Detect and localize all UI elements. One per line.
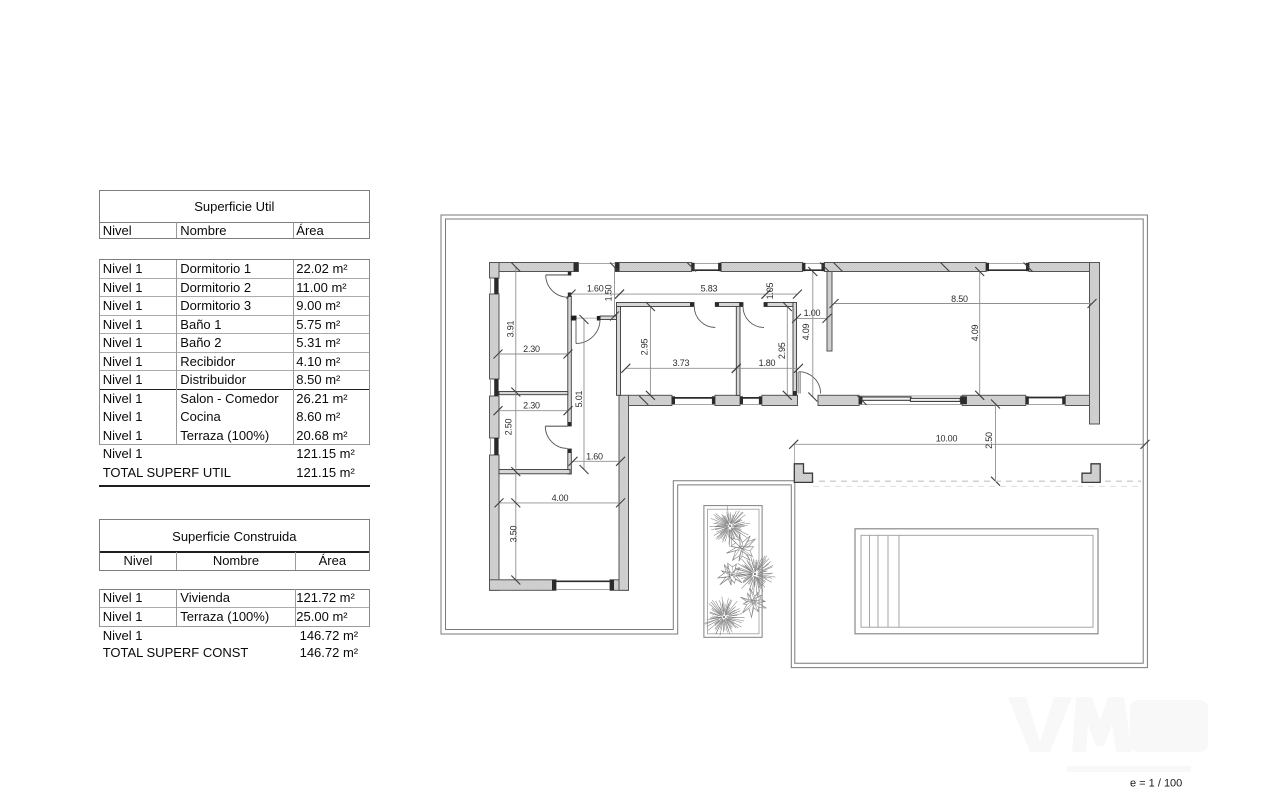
svg-text:4.09: 4.09: [970, 324, 980, 341]
svg-text:2.95: 2.95: [777, 342, 787, 359]
svg-text:3.73: 3.73: [673, 358, 690, 368]
svg-text:3.50: 3.50: [509, 525, 519, 542]
svg-text:2.50: 2.50: [984, 432, 994, 449]
svg-text:2.30: 2.30: [523, 401, 540, 411]
svg-text:1.60: 1.60: [586, 452, 603, 462]
svg-text:1.00: 1.00: [804, 308, 821, 318]
svg-text:1.60: 1.60: [587, 284, 604, 294]
svg-text:4.09: 4.09: [801, 323, 811, 340]
svg-text:1.05: 1.05: [765, 282, 775, 299]
svg-text:5.83: 5.83: [701, 284, 718, 294]
svg-text:8.50: 8.50: [951, 294, 968, 304]
svg-text:10.00: 10.00: [936, 434, 958, 444]
svg-text:5.01: 5.01: [574, 390, 584, 407]
svg-text:2.30: 2.30: [523, 344, 540, 354]
svg-text:1.80: 1.80: [759, 358, 776, 368]
svg-text:e = 1 / 100: e = 1 / 100: [1130, 778, 1182, 790]
svg-text:4.00: 4.00: [552, 493, 569, 503]
svg-text:3.91: 3.91: [505, 320, 515, 337]
svg-text:2.50: 2.50: [504, 418, 514, 435]
svg-text:1.50: 1.50: [604, 284, 614, 301]
svg-text:2.95: 2.95: [639, 338, 649, 355]
